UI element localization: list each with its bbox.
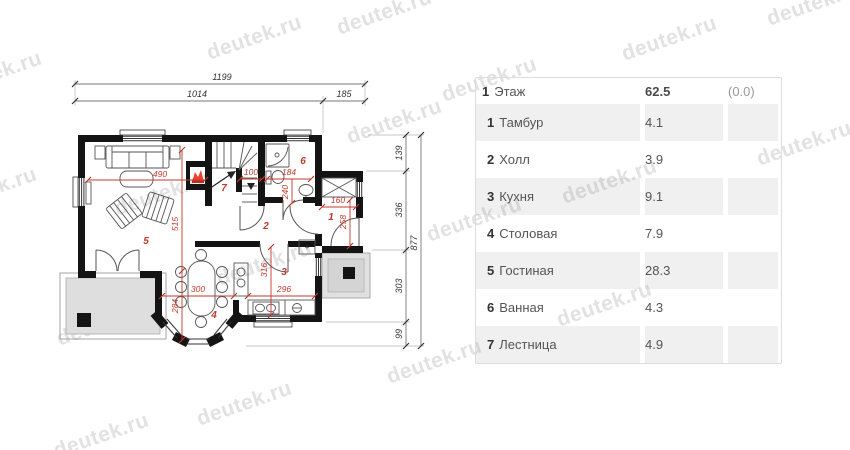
room-area: 4.9 xyxy=(645,326,723,363)
dim-kitchen-w: 296 xyxy=(276,284,291,294)
room-num: 7 xyxy=(487,337,494,352)
room-area: 7.9 xyxy=(645,215,723,252)
table-row: 1Тамбур 4.1 xyxy=(476,104,781,141)
room-num: 1 xyxy=(487,115,494,130)
room-num: 5 xyxy=(487,263,494,278)
floor-plan-svg: + xyxy=(0,0,470,450)
room-num: 2 xyxy=(487,152,494,167)
watermark: deutek.ru xyxy=(619,12,720,67)
floor-total-area: 62.5 xyxy=(645,78,723,104)
room-name: Кухня xyxy=(499,189,534,204)
dim-total-width: 1199 xyxy=(212,72,231,82)
room-label-bath: 6 xyxy=(300,156,306,167)
room-area: 3.9 xyxy=(645,141,723,178)
room-label-kitchen: 3 xyxy=(281,267,287,278)
floor-number: 1 xyxy=(482,84,489,99)
room-num: 3 xyxy=(487,189,494,204)
table-row: 7Лестница 4.9 xyxy=(476,326,781,363)
floor-plan-page: deutek.ru deutek.ru deutek.ru deutek.ru … xyxy=(0,0,850,450)
dim-bath-w: 184 xyxy=(282,167,296,177)
porch xyxy=(322,253,370,298)
room-num: 6 xyxy=(487,300,494,315)
room-name: Столовая xyxy=(499,226,557,241)
room-label-living: 5 xyxy=(143,236,149,247)
dim-total-height: 877 xyxy=(409,235,419,251)
dim-h2: 336 xyxy=(394,202,404,217)
room-area-table: 1Этаж 62.5 (0.0) 1Тамбур 4.1 2Холл 3.9 3… xyxy=(475,77,782,364)
dim-bath-h: 240 xyxy=(280,185,290,200)
table-row: 6Ванная 4.3 xyxy=(476,289,781,326)
dim-entry-h: 258 xyxy=(338,215,348,230)
room-label-entry: 1 xyxy=(328,212,334,223)
area-table-header: 1Этаж 62.5 (0.0) xyxy=(476,78,781,104)
room-name: Гостиная xyxy=(499,263,554,278)
dim-width-main: 1014 xyxy=(187,89,207,99)
room-name: Тамбур xyxy=(499,115,543,130)
room-area: 9.1 xyxy=(645,178,723,215)
dim-h1: 139 xyxy=(394,145,404,160)
dim-stair-w: 100 xyxy=(244,167,258,177)
dim-living-w: 490 xyxy=(153,169,167,179)
room-label-dining: 4 xyxy=(210,310,217,321)
dim-dining-w: 300 xyxy=(191,284,205,294)
dim-entry-w: 160 xyxy=(331,195,345,205)
room-label-hall: 2 xyxy=(262,221,269,232)
table-row: 5Гостиная 28.3 xyxy=(476,252,781,289)
table-row: 2Холл 3.9 xyxy=(476,141,781,178)
terrace xyxy=(60,273,166,339)
room-area: 4.1 xyxy=(645,104,723,141)
room-name: Холл xyxy=(499,152,530,167)
living-room-furniture xyxy=(86,146,180,229)
kitchen-fixtures: + xyxy=(234,240,315,315)
kitchen-plus-mark: + xyxy=(305,243,310,252)
dim-dining-h: 284 xyxy=(170,299,180,314)
room-area: 4.3 xyxy=(645,289,723,326)
fireplace-icon xyxy=(192,170,204,183)
dim-kitchen-h: 316 xyxy=(259,263,269,277)
floor-label: Этаж xyxy=(494,84,525,99)
room-name: Лестница xyxy=(499,337,556,352)
dim-width-entry: 185 xyxy=(336,89,352,99)
room-area: 28.3 xyxy=(645,252,723,289)
table-row: 3Кухня 9.1 xyxy=(476,178,781,215)
table-row: 4Столовая 7.9 xyxy=(476,215,781,252)
room-name: Ванная xyxy=(499,300,544,315)
dim-living-h: 515 xyxy=(170,217,180,231)
room-label-stairs: 7 xyxy=(221,183,227,194)
watermark: deutek.ru xyxy=(764,0,850,31)
dim-h3: 303 xyxy=(394,278,404,293)
floor-extra-area: (0.0) xyxy=(728,78,778,104)
dim-h4: 99 xyxy=(394,329,404,339)
room-num: 4 xyxy=(487,226,494,241)
